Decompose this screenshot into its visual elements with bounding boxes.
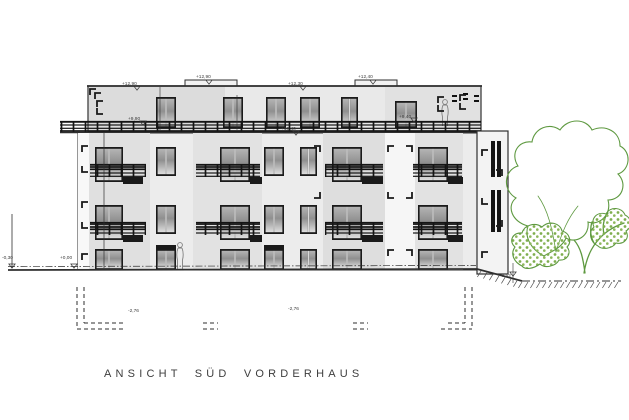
ground-hatch-tick [548, 282, 552, 288]
ground-line [8, 269, 477, 270]
ground-hatch-tick [518, 282, 522, 288]
balcony-railing [325, 164, 383, 177]
bush [512, 223, 570, 268]
elevation-annotation: +12,30 [288, 81, 303, 87]
tower-slit-window [497, 141, 501, 177]
ground-hatch-tick [530, 282, 534, 288]
window-mullion [165, 149, 166, 174]
elevation-annotation: -0,30 [2, 255, 13, 261]
ground-hatch-tick [536, 282, 540, 288]
elevation-annotation: -2,76 [288, 306, 299, 312]
balcony-slab [123, 235, 143, 242]
elevation-annotation: +10,40 [281, 126, 296, 132]
drawing-canvas: +12,90+12,90+12,30+12,40+9,90+10,40+9,40… [0, 0, 629, 420]
tree-foliage-cluster [591, 208, 629, 248]
tower-slit-window [491, 190, 495, 232]
elevation-annotation: -0,52 [500, 273, 511, 279]
ground-hatch-tick [495, 276, 499, 282]
ground-hatch-tick [596, 282, 600, 288]
ground-hatch-tick [584, 282, 588, 288]
window-mullion [308, 207, 309, 232]
balcony-slab [448, 177, 463, 184]
vent-slit [452, 100, 457, 102]
elevation-annotation: +12,90 [196, 74, 211, 80]
window-glazing [275, 207, 283, 232]
window-glazing [167, 207, 175, 232]
balcony-slab [250, 235, 262, 242]
window-mullion [273, 207, 274, 232]
ground-floor-window-glazing [167, 251, 175, 268]
elevation-annotation: +9,90 [128, 116, 140, 122]
window-glazing [167, 149, 175, 174]
ground-hatch-tick [524, 282, 528, 288]
ground-hatch-tick [489, 274, 493, 280]
elevation-annotation: -2,76 [128, 308, 139, 314]
elevation-annotation: +0,00 [60, 255, 72, 261]
window-glazing [158, 207, 166, 232]
drawing-title: ANSICHT SÜD VORDERHAUS [104, 368, 363, 380]
elevation-annotation: +9,40 [399, 114, 411, 120]
balcony-railing [196, 164, 260, 177]
window-glazing [275, 149, 283, 174]
ground-floor-window-mullion [234, 251, 235, 268]
elevation-drawing: +12,90+12,90+12,30+12,40+9,90+10,40+9,40… [0, 0, 629, 420]
window-mullion [273, 149, 274, 174]
ground-floor-window-mullion [108, 251, 109, 268]
ground-floor-window-glazing [158, 251, 166, 268]
vent-slit [463, 98, 468, 100]
balcony-slab [362, 235, 383, 242]
balcony-slab [250, 177, 262, 184]
window-glazing [266, 207, 274, 232]
ground-hatch-tick [554, 282, 558, 288]
balcony-railing [196, 222, 260, 235]
ground-floor-window-glazing [110, 251, 122, 268]
ground-hatch-tick [578, 282, 582, 288]
vent-slit [474, 95, 479, 97]
balcony-railing [90, 164, 146, 177]
ground-hatch-tick [542, 282, 546, 288]
elevation-annotation: +12,40 [358, 74, 373, 80]
tower-slit-window [491, 141, 495, 177]
elevation-annotation: +12,90 [122, 81, 137, 87]
vent-slit [474, 100, 479, 102]
ground-hatch-tick [560, 282, 564, 288]
window-glazing [266, 149, 274, 174]
ground-floor-window-glazing [97, 251, 109, 268]
window-mullion [308, 149, 309, 174]
window-lintel [156, 245, 176, 249]
balcony-railing [325, 222, 383, 235]
window-glazing [309, 149, 315, 174]
window-mullion [165, 207, 166, 232]
ground-hatch-tick [608, 282, 612, 288]
window-glazing [158, 149, 166, 174]
ground-hatch-tick [614, 282, 618, 288]
ground-hatch-tick [513, 281, 517, 287]
ground-floor-window-mullion [165, 251, 166, 268]
balcony-slab [362, 177, 383, 184]
balcony-railing [413, 222, 462, 235]
ground-hatch-tick [572, 282, 576, 288]
ground-hatch-tick [602, 282, 606, 288]
window-glazing [302, 149, 308, 174]
window-glazing [302, 207, 308, 232]
balcony-railing [90, 222, 146, 235]
window-lintel [264, 245, 284, 249]
window-glazing [309, 207, 315, 232]
balcony-slab [448, 235, 463, 242]
balcony-railing [413, 164, 462, 177]
ground-hatch-tick [566, 282, 570, 288]
vent-slit [452, 95, 457, 97]
ground-floor-window-glazing [236, 251, 249, 268]
ground-floor-window-glazing [222, 251, 235, 268]
ground-hatch-tick [507, 279, 511, 285]
balcony-slab [123, 177, 143, 184]
ground-hatch-tick [590, 282, 594, 288]
